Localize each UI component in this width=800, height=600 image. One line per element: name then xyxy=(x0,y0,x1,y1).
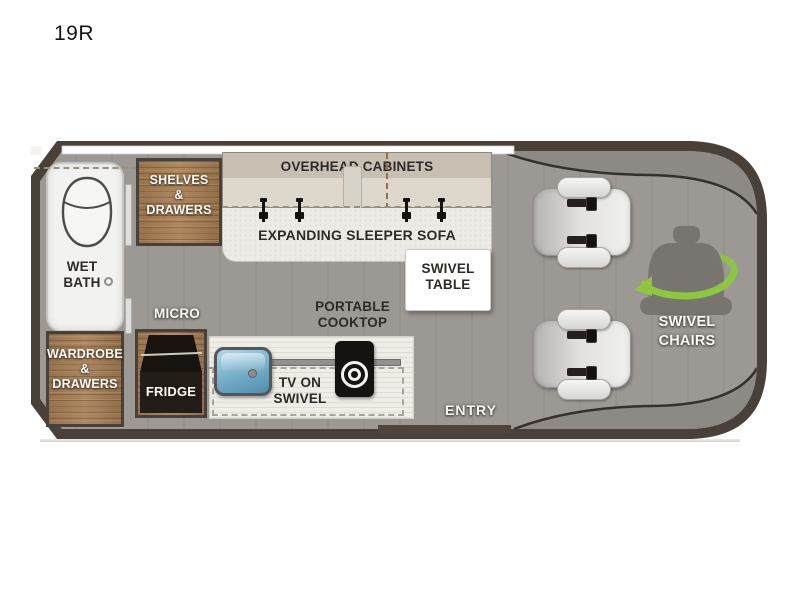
drain-icon xyxy=(104,277,113,286)
seatbelt-icon xyxy=(437,198,446,225)
wardrobe-cabinet: WARDROBE & DRAWERS xyxy=(46,331,124,427)
fridge-label: FRIDGE xyxy=(140,384,202,399)
wet-bath: WET BATH xyxy=(46,162,124,332)
wardrobe-label: WARDROBE & DRAWERS xyxy=(45,347,125,391)
shelves-label: SHELVES & DRAWERS xyxy=(139,173,219,217)
burner-inner-ring xyxy=(348,368,361,381)
swivel-chairs-label: SWIVEL CHAIRS xyxy=(645,313,729,351)
seatbelt-buckle-icon xyxy=(567,236,594,244)
swivel-chair-ghost-icon xyxy=(630,224,742,319)
seatbelt-buckle-icon xyxy=(567,331,594,339)
seatbelt-icon xyxy=(295,198,304,225)
chair-armrest xyxy=(557,309,611,330)
van-ground-shadow xyxy=(40,439,740,442)
sleeper-sofa-label: EXPANDING SLEEPER SOFA xyxy=(223,227,491,244)
cabinet-dashline xyxy=(386,153,388,209)
chair-armrest xyxy=(557,177,611,198)
swivel-chair-driver xyxy=(533,177,631,268)
toilet-icon xyxy=(59,176,115,250)
swivel-chair-passenger xyxy=(533,309,631,400)
tv-label: TV ON SWIVEL xyxy=(268,375,332,407)
seatbelt-icon xyxy=(402,198,411,225)
sliding-door-bar xyxy=(378,425,511,434)
tv-icon xyxy=(214,347,272,396)
bath-wall-lower xyxy=(125,298,132,334)
swivel-table: SWIVEL TABLE xyxy=(405,249,491,311)
fridge-unit: FRIDGE xyxy=(140,372,202,413)
bath-wall-upper xyxy=(125,184,132,246)
micro-fridge-cabinet: FRIDGE xyxy=(135,329,207,418)
micro-label: MICRO xyxy=(144,306,210,322)
entry-label: ENTRY xyxy=(440,402,502,419)
swivel-table-label: SWIVEL TABLE xyxy=(406,261,490,293)
tv-mount-knob xyxy=(248,369,257,378)
floorplan-page: 19R WET BATH xyxy=(0,0,800,600)
wet-bath-label: WET BATH xyxy=(52,259,112,291)
chair-armrest xyxy=(557,247,611,268)
tv-screen-glare xyxy=(221,353,265,371)
seatbelt-buckle-icon xyxy=(567,199,594,207)
rear-trim xyxy=(31,146,41,155)
bath-slide-dashline xyxy=(34,167,138,169)
shelves-cabinet: SHELVES & DRAWERS xyxy=(136,158,222,246)
chair-armrest xyxy=(557,379,611,400)
seatbelt-buckle-icon xyxy=(567,368,594,376)
seatbelt-icon xyxy=(259,198,268,225)
cooktop-label: PORTABLE COOKTOP xyxy=(305,299,400,331)
swivel-arrow-head xyxy=(634,276,652,296)
